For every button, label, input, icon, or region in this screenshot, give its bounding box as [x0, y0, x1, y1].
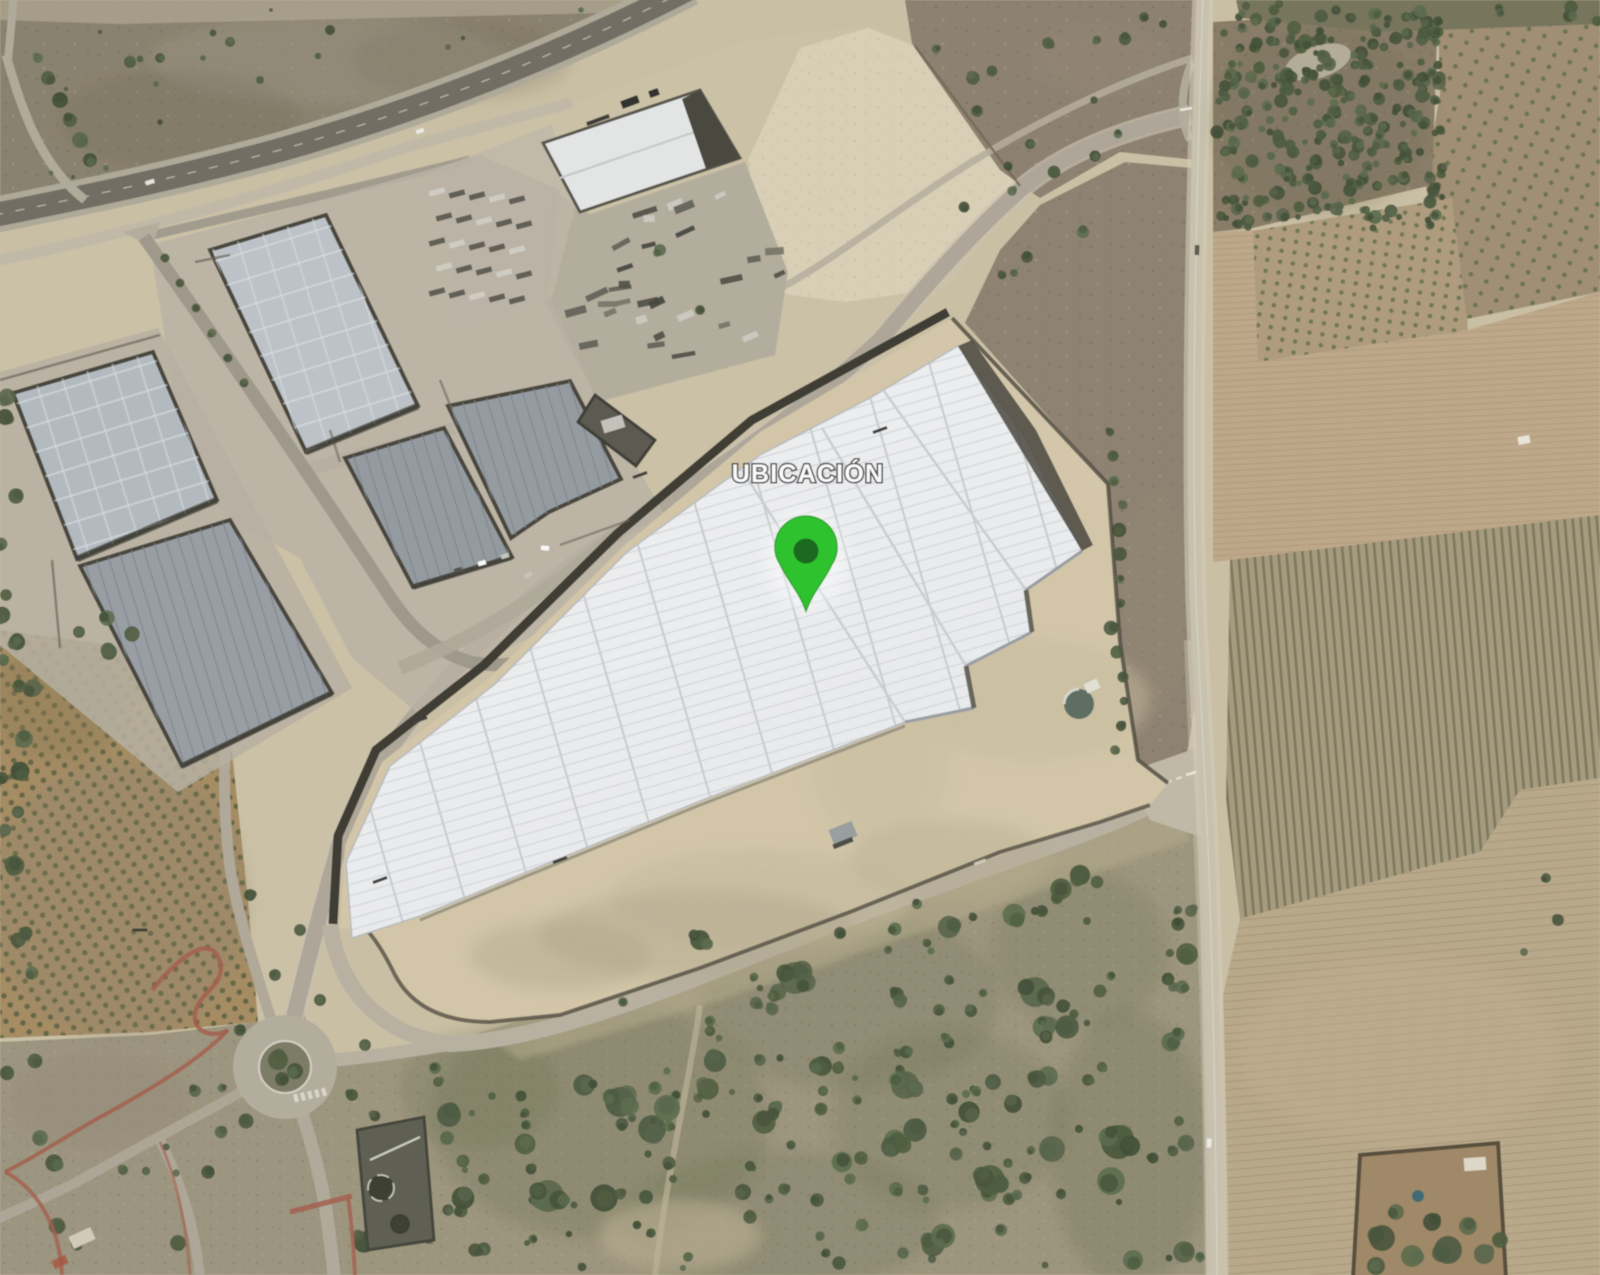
- svg-text:UBICACIÓN: UBICACIÓN: [732, 458, 884, 488]
